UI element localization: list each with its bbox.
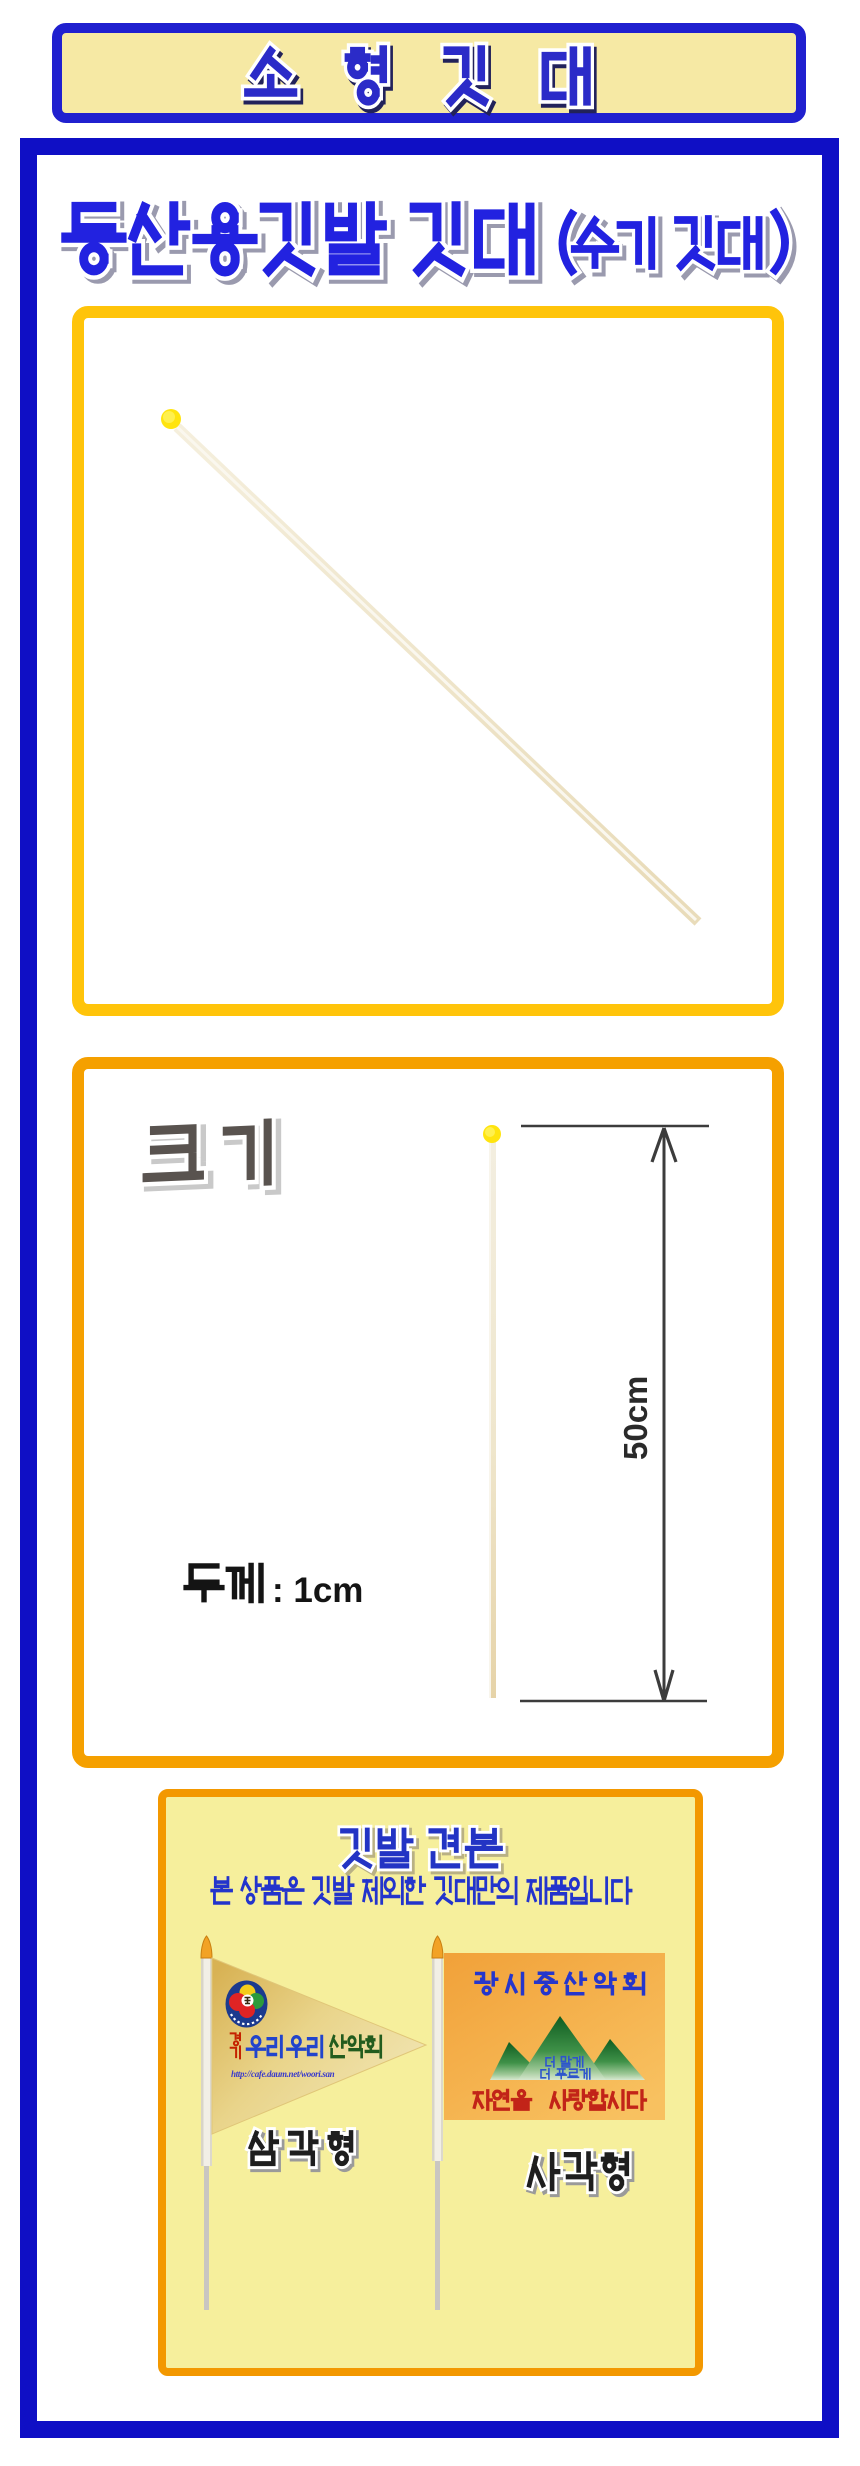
svg-text:: 1cm: : 1cm <box>272 1571 363 1610</box>
